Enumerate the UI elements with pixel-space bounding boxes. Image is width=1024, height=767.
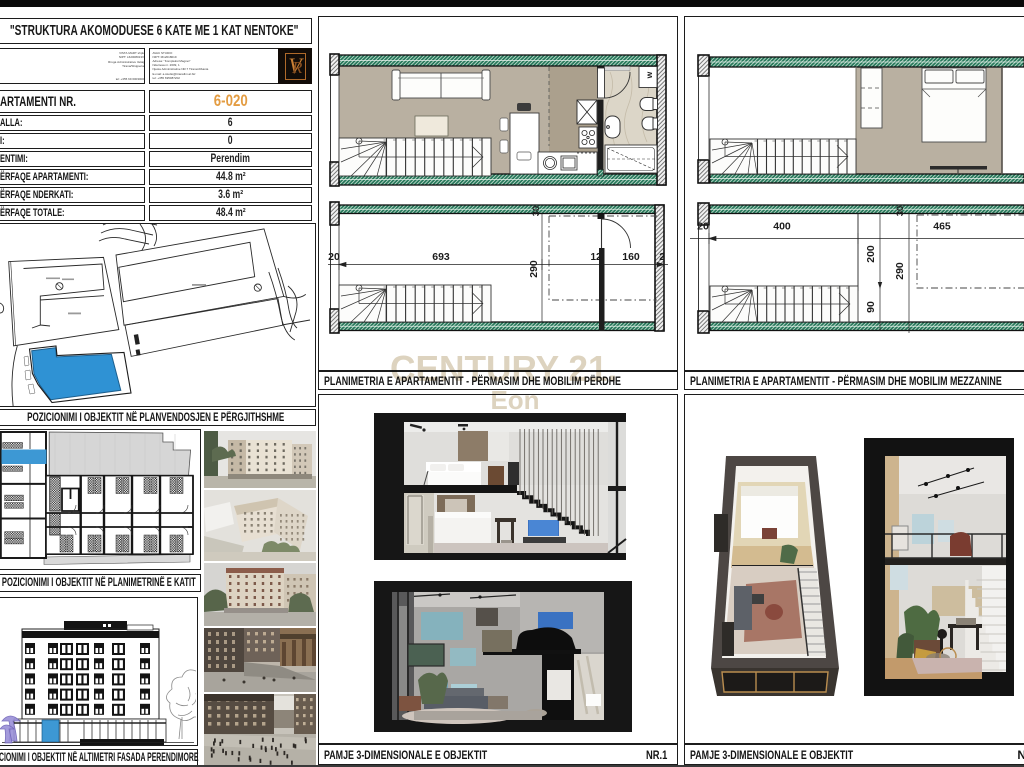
svg-text:200: 200 — [865, 245, 877, 263]
svg-text:465: 465 — [933, 221, 951, 233]
svg-text:400: 400 — [773, 221, 791, 233]
svg-text:290: 290 — [894, 262, 906, 280]
svg-text:w: w — [644, 71, 654, 79]
svg-text:30: 30 — [895, 206, 906, 217]
svg-text:20: 20 — [697, 221, 709, 233]
svg-text:90: 90 — [865, 301, 877, 313]
svg-text:20: 20 — [328, 251, 340, 263]
svg-text:2: 2 — [659, 252, 665, 263]
svg-text:30: 30 — [531, 206, 542, 217]
svg-text:290: 290 — [528, 260, 540, 278]
svg-text:693: 693 — [432, 251, 450, 263]
svg-text:160: 160 — [622, 251, 640, 263]
